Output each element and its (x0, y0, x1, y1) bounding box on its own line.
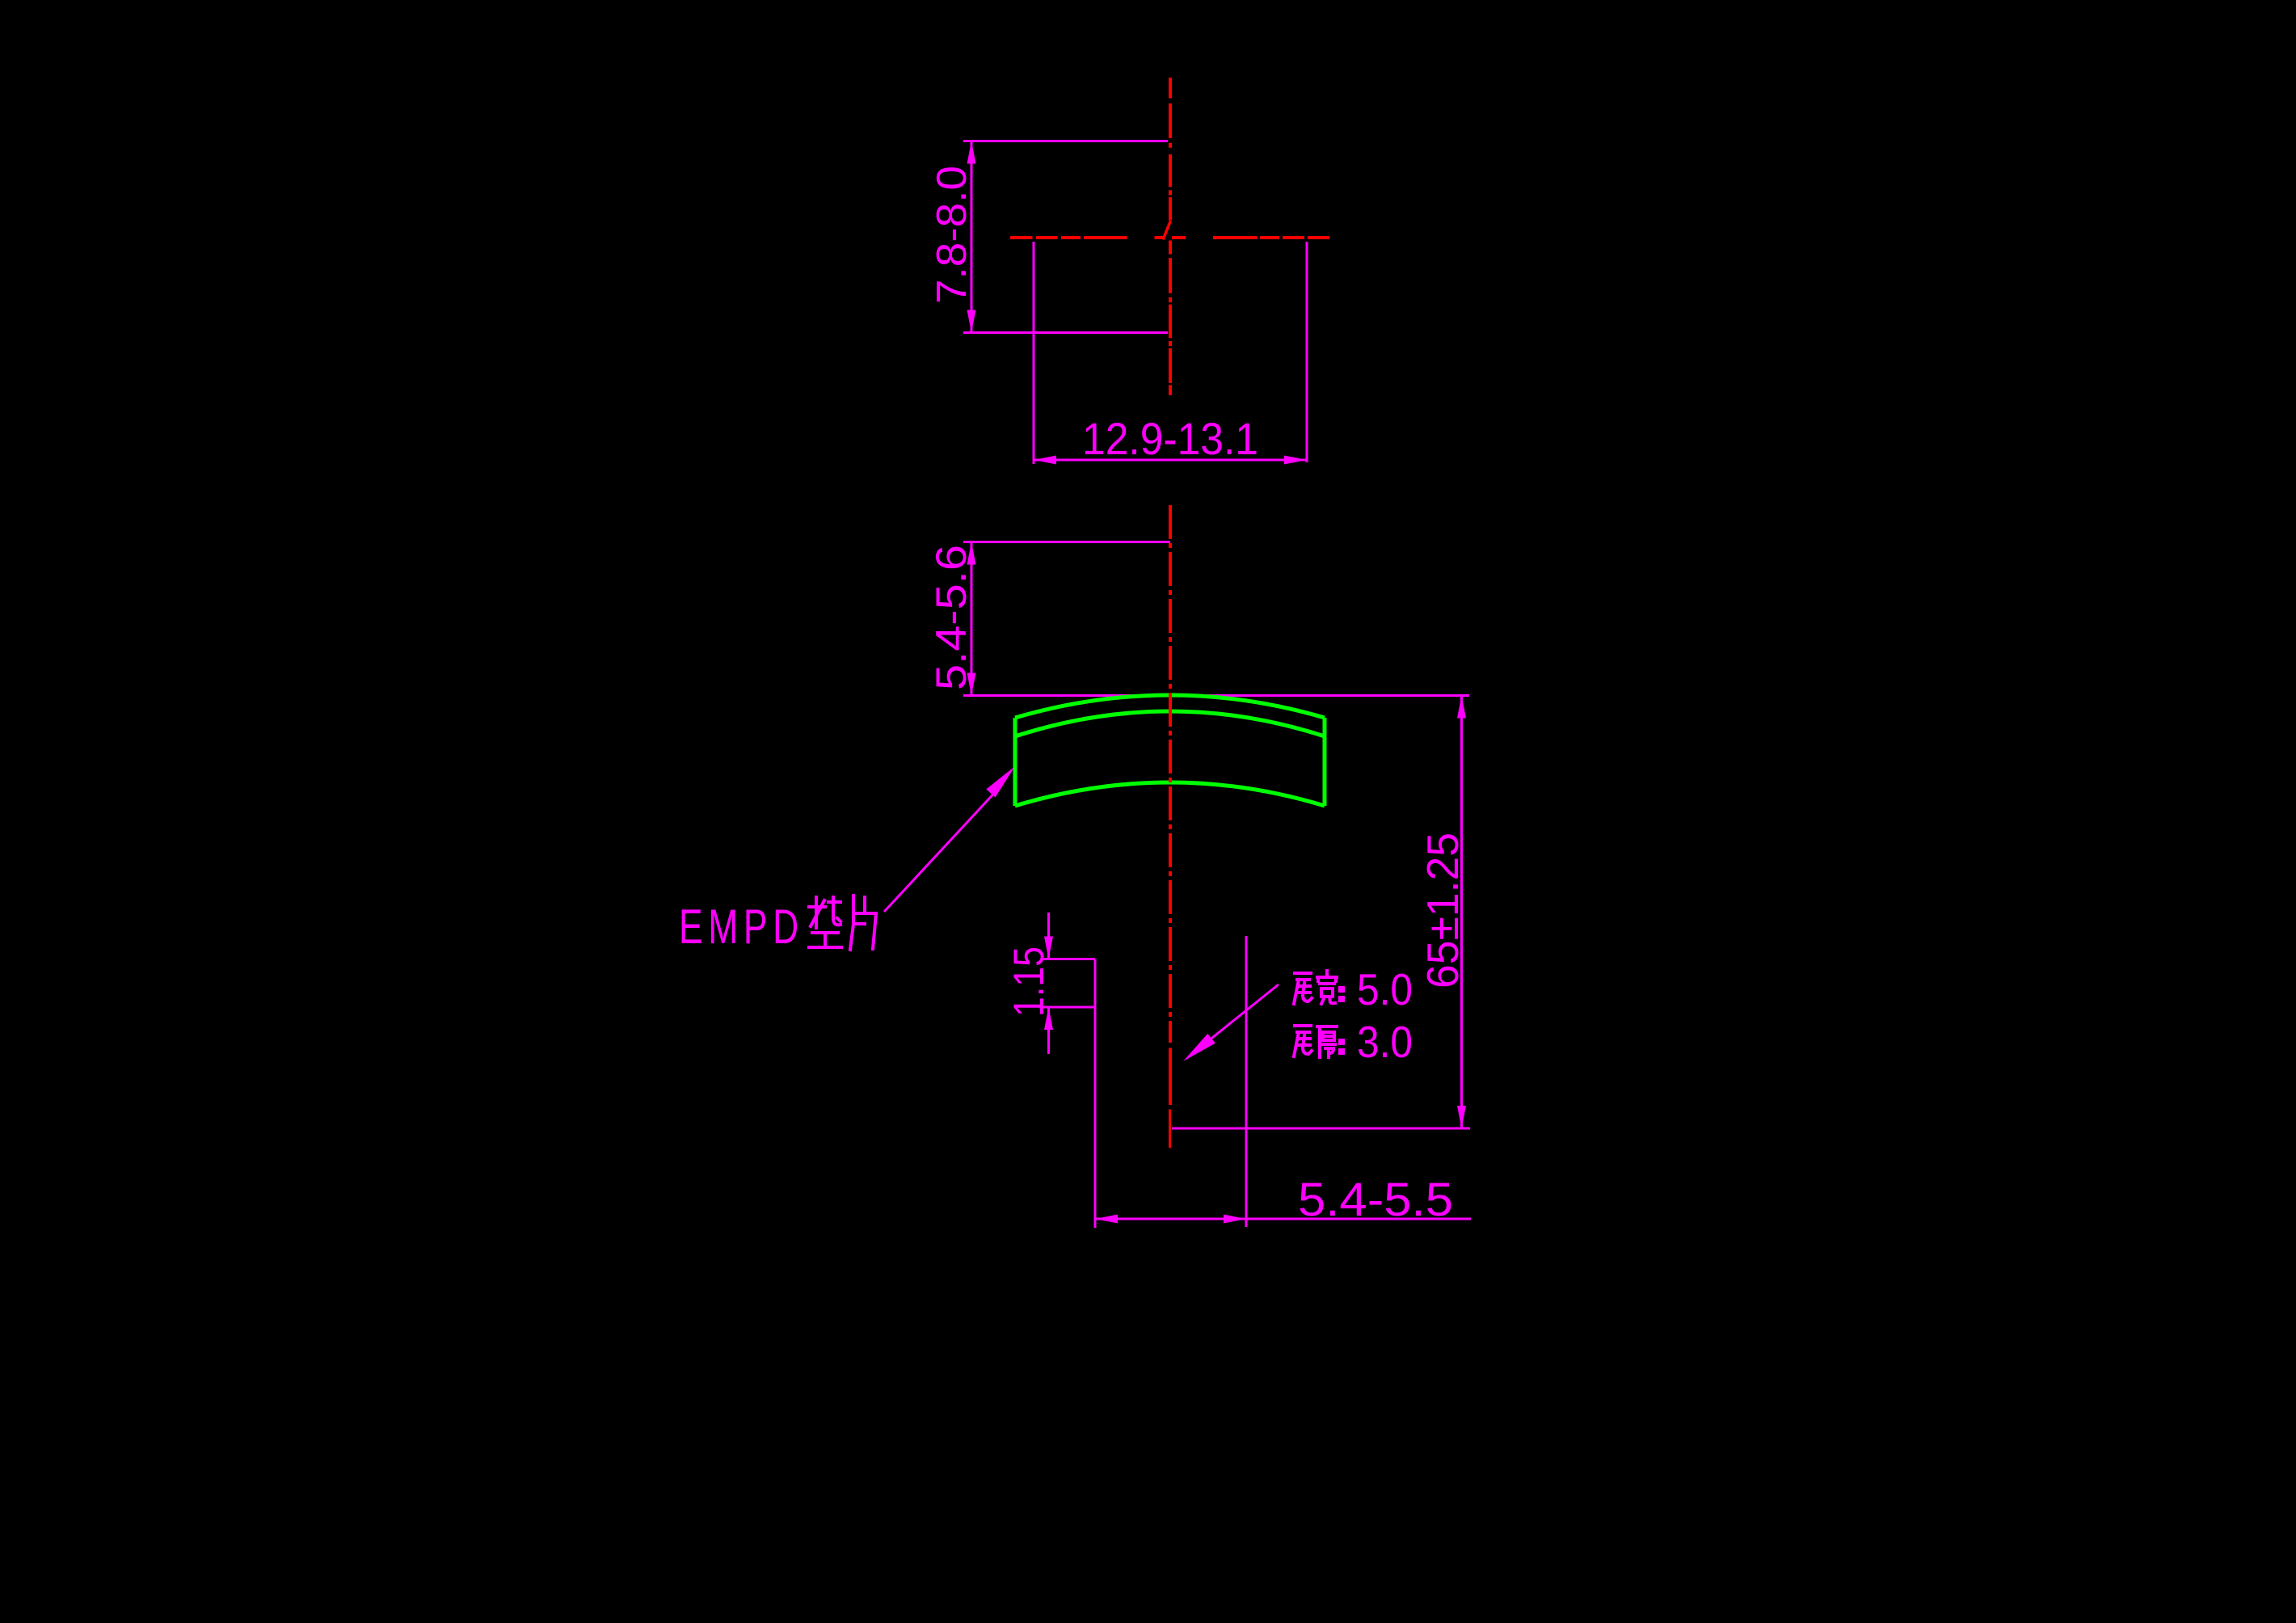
svg-text:EMPD: EMPD (679, 900, 804, 955)
svg-text:5.4-5.6: 5.4-5.6 (928, 545, 975, 690)
svg-text:12.9-13.1: 12.9-13.1 (1082, 413, 1258, 464)
svg-text:65±1.25: 65±1.25 (1418, 833, 1468, 989)
svg-text:5.4-5.5: 5.4-5.5 (1298, 1174, 1453, 1226)
svg-text:1.15: 1.15 (1005, 946, 1053, 1017)
svg-text:7.8-8.0: 7.8-8.0 (929, 166, 975, 304)
svg-text:5.0: 5.0 (1357, 964, 1413, 1014)
svg-text:3.0: 3.0 (1357, 1017, 1413, 1067)
